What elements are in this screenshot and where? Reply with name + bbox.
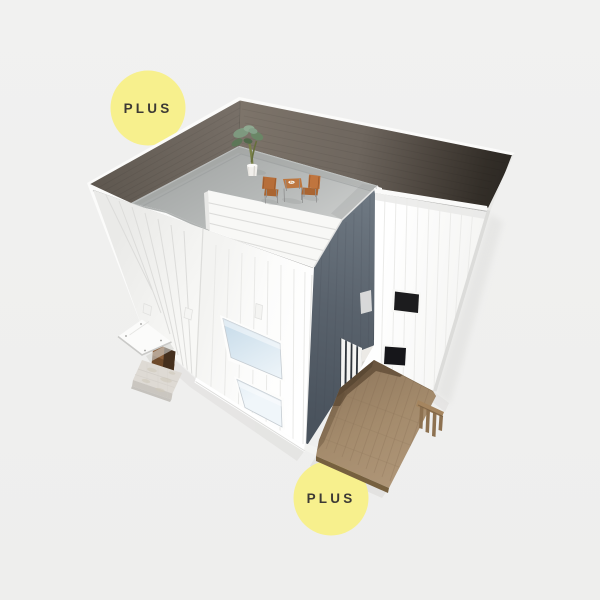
svg-text:PLUS: PLUS [124, 101, 173, 116]
svg-text:PLUS: PLUS [307, 491, 356, 506]
